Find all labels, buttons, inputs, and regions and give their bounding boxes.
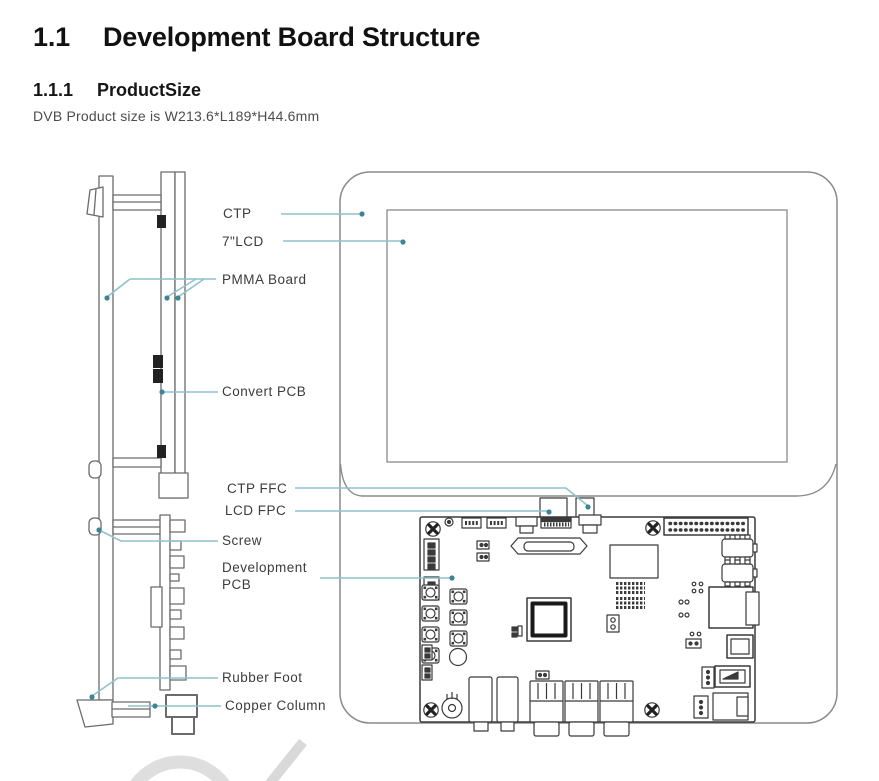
usb-port [565, 681, 598, 736]
round-button [450, 649, 467, 666]
side-view [77, 172, 197, 734]
label-development-pcb: Development [222, 560, 307, 576]
label-rubber-foot: Rubber Foot [222, 670, 303, 686]
ethernet-port [600, 681, 633, 736]
label-lcd-fpc: LCD FPC [225, 503, 286, 519]
label-ctp: CTP [223, 206, 252, 222]
label-ctp-ffc: CTP FFC [227, 481, 287, 497]
label-development-pcb-line2: PCB [222, 577, 251, 593]
label-7lcd: 7"LCD [222, 234, 264, 250]
audio-jack [497, 677, 518, 722]
label-convert-pcb: Convert PCB [222, 384, 306, 400]
watermark [124, 742, 303, 781]
usb-port [530, 681, 563, 736]
pcb-top-view [420, 498, 759, 736]
label-copper-column: Copper Column [225, 698, 326, 714]
lcd-screen [387, 210, 787, 462]
label-pmma-board: PMMA Board [222, 272, 307, 288]
audio-jack [469, 677, 492, 722]
label-screw: Screw [222, 533, 262, 549]
structure-diagram [0, 0, 879, 781]
lcd-fpc-tab [540, 498, 567, 518]
document-page: 1.1 Development Board Structure 1.1.1 Pr… [0, 0, 879, 781]
